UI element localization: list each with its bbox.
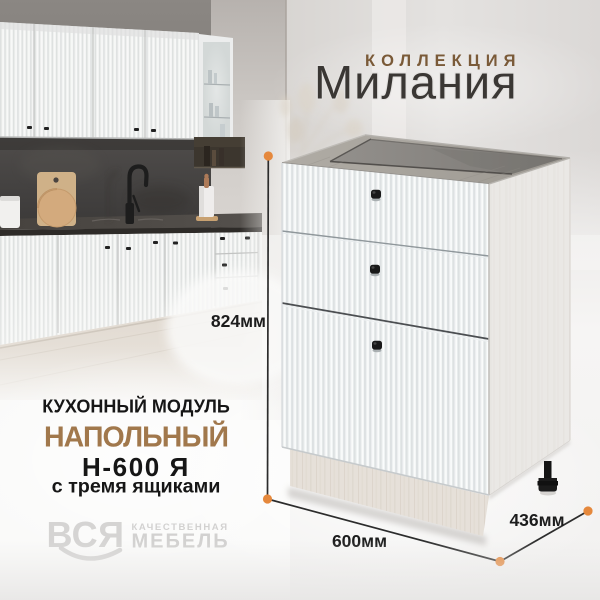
svg-text:824мм: 824мм (211, 311, 266, 331)
svg-text:с тремя ящиками: с тремя ящиками (52, 476, 221, 498)
svg-text:Милания: Милания (314, 56, 518, 109)
svg-text:436мм: 436мм (509, 510, 564, 530)
svg-text:КУХОННЫЙ МОДУЛЬ: КУХОННЫЙ МОДУЛЬ (42, 396, 230, 417)
svg-text:НАПОЛЬНЫЙ: НАПОЛЬНЫЙ (44, 421, 228, 454)
